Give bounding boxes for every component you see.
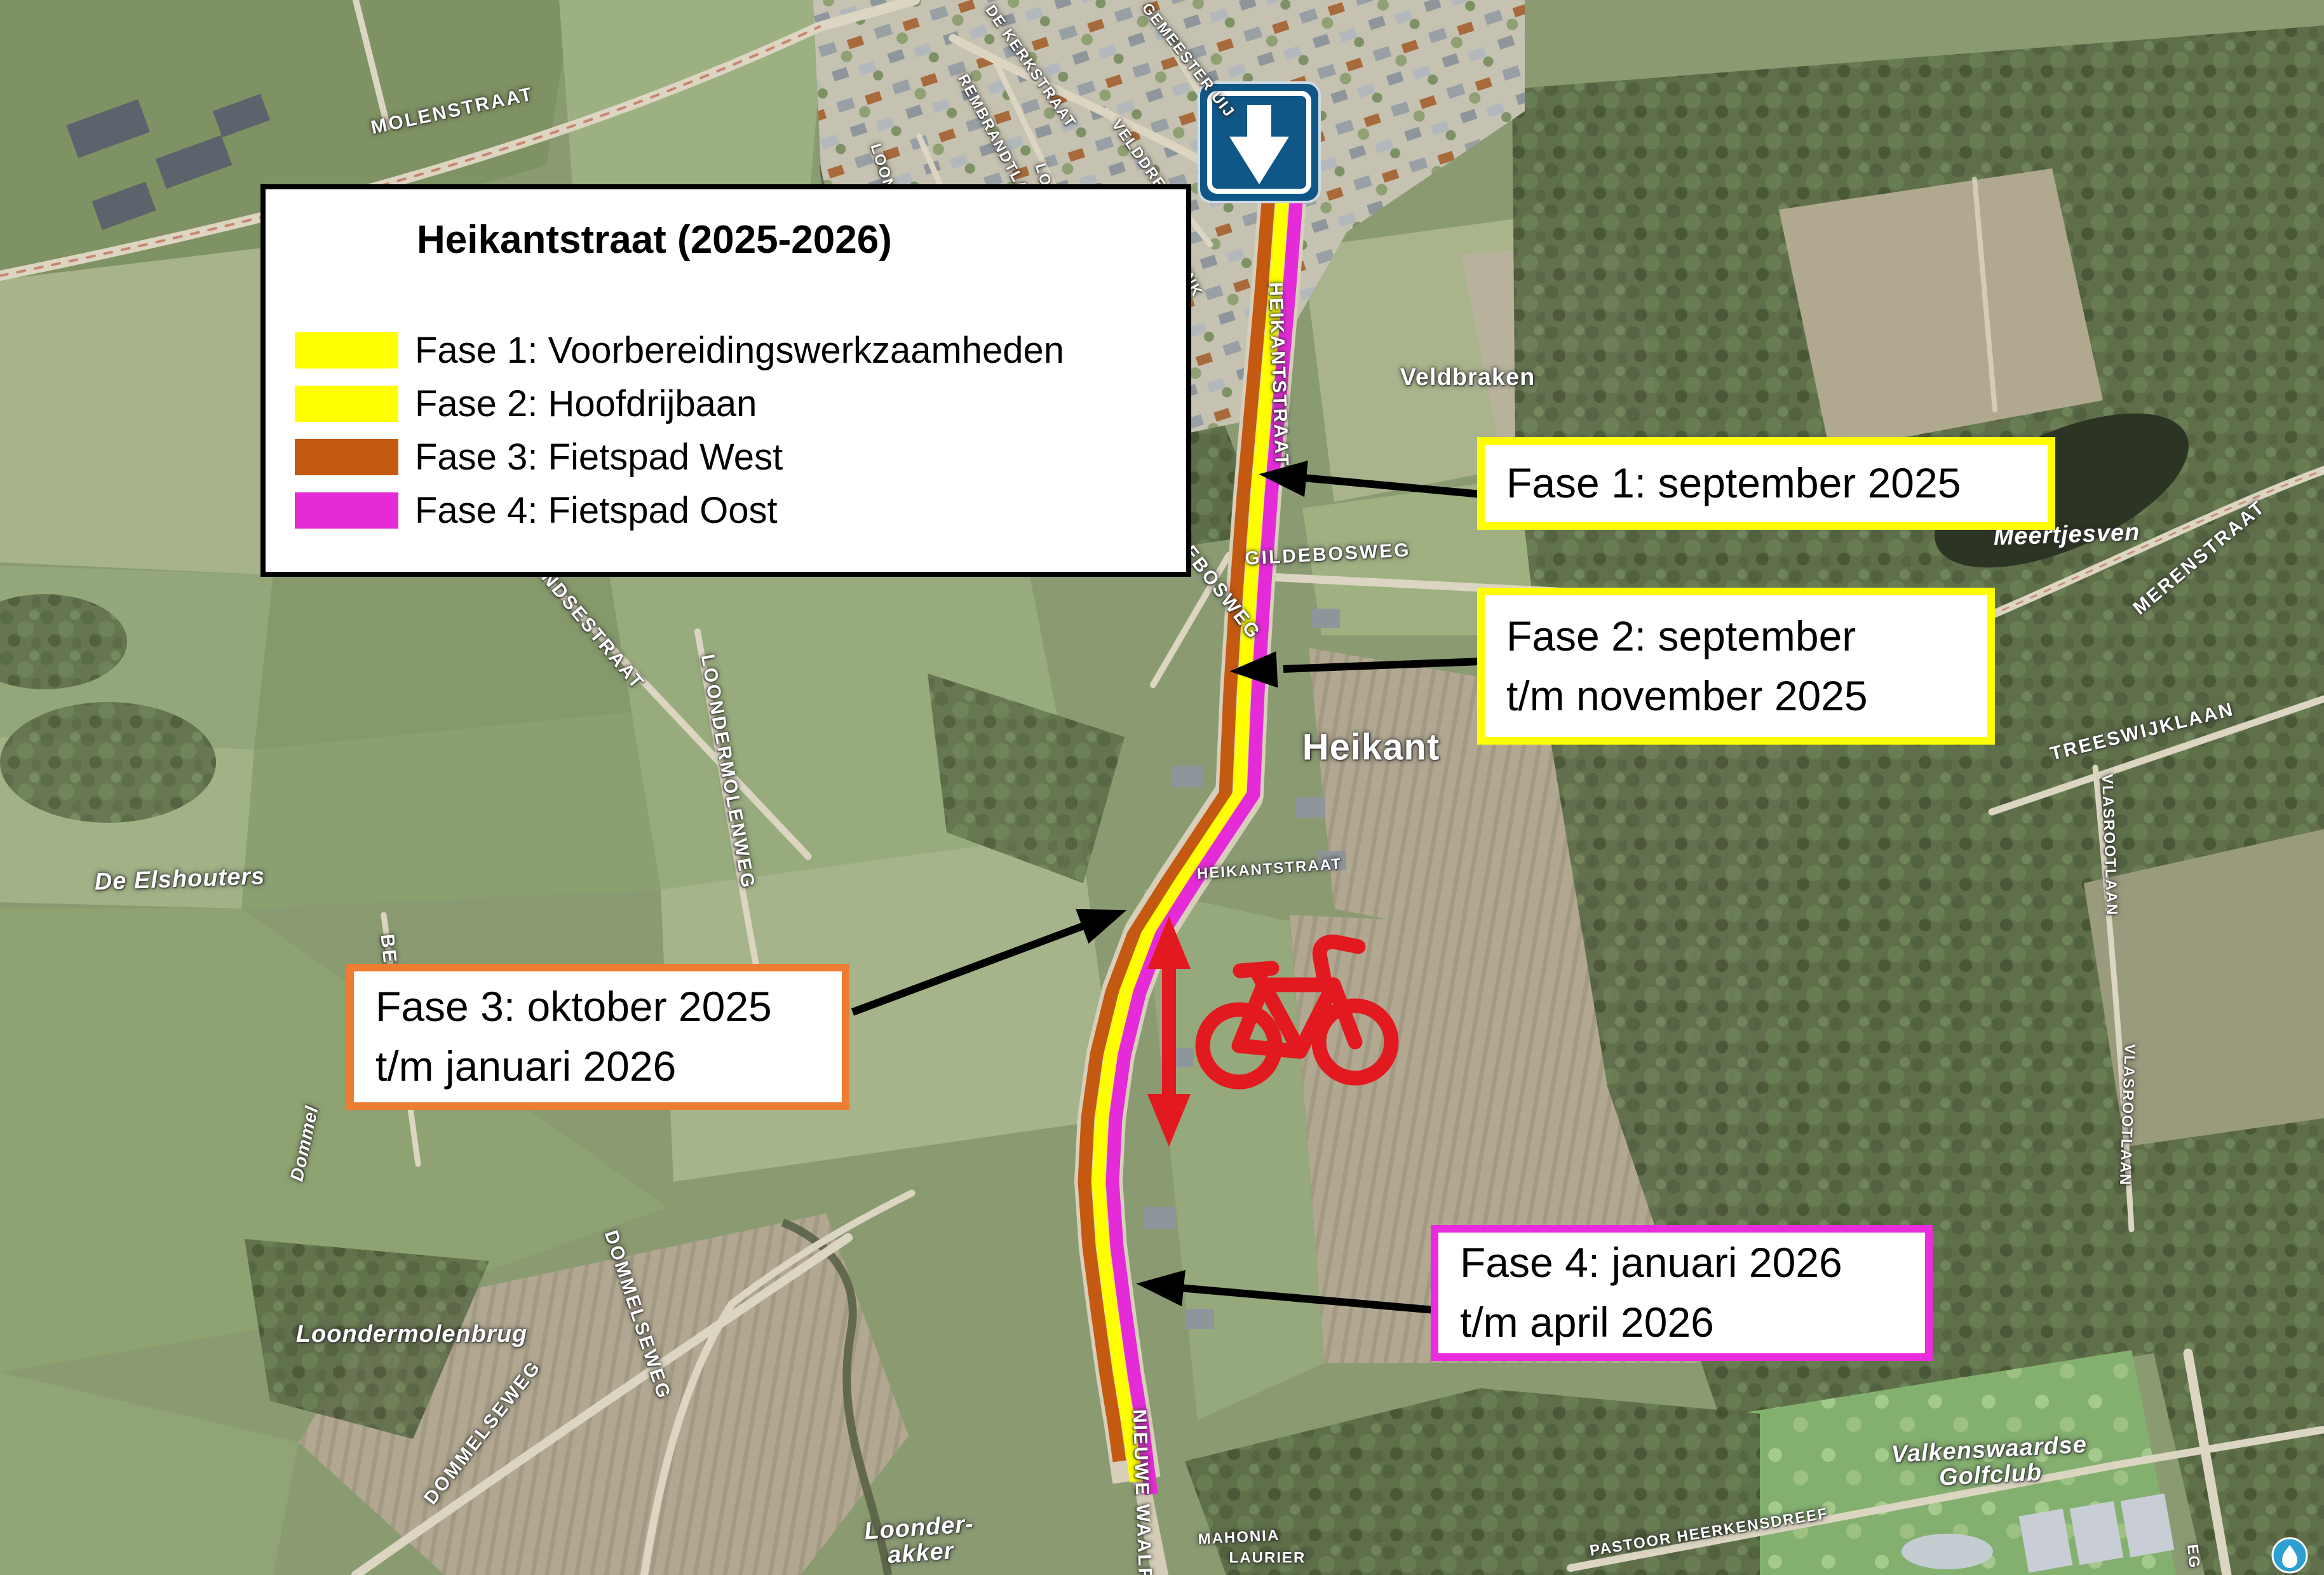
legend-item-fase4: Fase 4: Fietspad Oost: [295, 491, 778, 529]
legend-label: Fase 1: Voorbereidingswerkzaamheden: [415, 329, 1064, 372]
callout-fase3-line2: t/m januari 2026: [375, 1037, 820, 1097]
legend-swatch-fase4: [295, 492, 398, 529]
legend-title: Heikantstraat (2025-2026): [417, 217, 892, 262]
legend-item-fase1: Fase 1: Voorbereidingswerkzaamheden: [295, 331, 1064, 369]
legend-swatch-fase1: [295, 332, 398, 368]
callout-fase4: Fase 4: januari 2026 t/m april 2026: [1431, 1225, 1933, 1361]
callout-fase4-line2: t/m april 2026: [1460, 1293, 1903, 1353]
legend-swatch-fase3: [295, 439, 398, 475]
legend-item-fase2: Fase 2: Hoofdrijbaan: [295, 384, 757, 422]
legend: Heikantstraat (2025-2026) Fase 1: Voorbe…: [260, 184, 1191, 577]
legend-label: Fase 3: Fietspad West: [415, 436, 783, 478]
callout-fase3-line1: Fase 3: oktober 2025: [375, 977, 820, 1037]
callout-fase3: Fase 3: oktober 2025 t/m januari 2026: [346, 964, 849, 1110]
callout-fase1-line1: Fase 1: september 2025: [1506, 454, 2026, 513]
callout-fase2-line1: Fase 2: september: [1506, 607, 1966, 666]
callout-fase4-line1: Fase 4: januari 2026: [1460, 1233, 1903, 1293]
legend-label: Fase 4: Fietspad Oost: [415, 489, 778, 532]
water-poi-icon: [2273, 1538, 2307, 1572]
legend-swatch-fase2: [295, 386, 398, 422]
legend-item-fase3: Fase 3: Fietspad West: [295, 438, 783, 476]
callout-fase2: Fase 2: september t/m november 2025: [1477, 588, 1995, 745]
callout-fase1: Fase 1: september 2025: [1477, 437, 2055, 530]
callout-fase2-line2: t/m november 2025: [1506, 666, 1966, 726]
map-infographic: MOLENSTRAATLOONDERKERKPADDE KERKSTRAATRE…: [0, 0, 2324, 1575]
down-arrow-sign-icon: [1199, 83, 1320, 202]
legend-label: Fase 2: Hoofdrijbaan: [415, 382, 757, 425]
